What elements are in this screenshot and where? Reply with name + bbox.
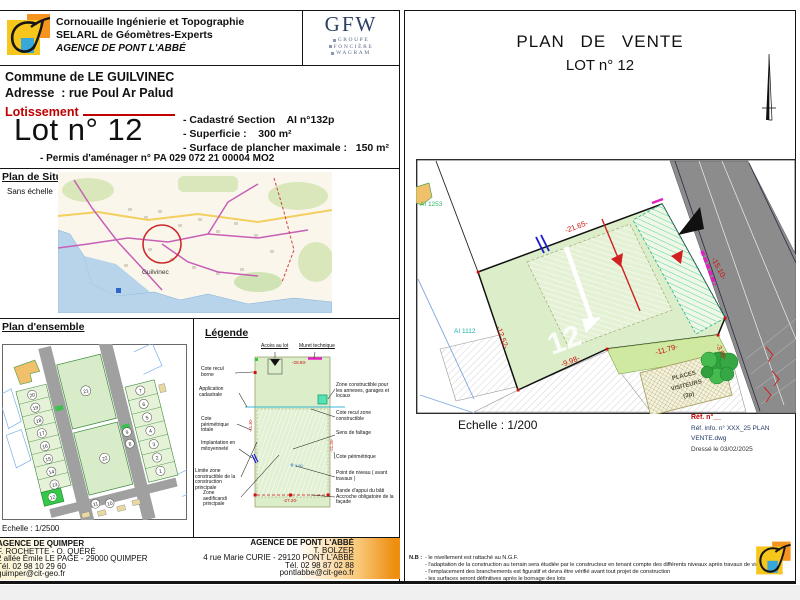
gfw-square-icon — [329, 45, 332, 48]
ref-date: Dressé le 03/02/2025 — [691, 445, 800, 456]
legend-label-zone-annexes: Zone constructible pour les annexes, gar… — [336, 383, 396, 400]
gfw-square-icon — [331, 52, 334, 55]
permis-amenager: - Permis d'aménager n° PA 029 072 21 000… — [40, 153, 274, 164]
nb-line: - l'adaptation de la construction au ter… — [425, 562, 780, 569]
legend-label-cote-recul-borne: Cote recul borne — [201, 367, 235, 378]
title-line1: PLAN DE VENTE — [480, 32, 720, 52]
divider — [0, 318, 400, 319]
divider — [0, 65, 400, 66]
legend-label-implantation: Implantation en mitoyenneté — [201, 441, 237, 452]
agency-email: pontlabbe@cit-geo.fr — [193, 569, 354, 577]
legend-dim-bottom: -27.20- — [283, 498, 298, 503]
situation-map: Guilvinec — [58, 172, 332, 313]
parcel-label-w: AI 1112 — [454, 328, 476, 335]
company-name: Cornouaille Ingénierie et Topographie — [56, 16, 244, 29]
nb-line: - l'emplacement des branchements est fig… — [425, 569, 780, 576]
legend-label-limite-zone: Limite zone constructible de la construc… — [195, 469, 241, 491]
divider — [404, 10, 796, 11]
nb-line: - les surfaces seront définitives après … — [425, 576, 780, 583]
footer-agence-quimper: AGENCE DE QUIMPER F. ROCHETTE - O. QUÉRÉ… — [0, 539, 193, 580]
legend-label-point-de-niveau: Point de niveau ( avant travaux ) — [336, 471, 388, 482]
gfw-acronym: GFW — [303, 12, 399, 37]
references-block: Réf. n°__ Réf. info. n° XXX_25 PLAN VENT… — [691, 413, 800, 455]
cit-logo — [4, 12, 52, 62]
company-type: SELARL de Géomètres-Experts — [56, 29, 244, 42]
map-harbor-icon — [116, 288, 121, 293]
parcel-label-nw: AI 1253 — [420, 201, 443, 208]
company-header: Cornouaille Ingénierie et Topographie SE… — [56, 16, 244, 55]
superficie: - Superficie : 300 m² — [183, 127, 389, 141]
ref-info: Réf. info. n° XXX_25 PLAN VENTE.dwg — [691, 424, 800, 445]
lot-number-title: Lot n° 12 — [14, 112, 143, 148]
legend-label-cote-recul-zone: Cote recul zone constructible — [336, 411, 391, 422]
agency-email: quimper@cit-geo.fr — [0, 570, 193, 578]
nota-bene: N.B : - le nivellement est rattaché au N… — [409, 555, 793, 583]
nb-intro: N.B : — [409, 555, 422, 583]
map-place-label: Guilvinec — [142, 269, 169, 276]
commune-label: Commune de LE GUILVINEC — [5, 70, 174, 84]
legend: Légende -28.80- -41.30- -21.26- 5.50 -27… — [195, 327, 400, 535]
legend-dim-top: -28.80- — [292, 360, 307, 365]
gfw-word: WAGRAM — [336, 50, 371, 57]
legend-label-sens-de-faitage: Sens de faîtage — [336, 431, 386, 437]
footer-agence-pontlabbe: AGENCE DE PONT L'ABBÉ T. BOLZER 4 rue Ma… — [193, 538, 400, 579]
legend-label-application-cadastrale: Application cadastrale — [199, 387, 241, 398]
gfw-square-icon — [333, 39, 336, 42]
ensemble-title: Plan d'ensemble — [2, 321, 84, 333]
legend-label-cote-perimetrique: Cote périmétrique — [336, 455, 386, 461]
legend-label-bande-appui: Bande d'appui du bâti Accroche obligatoi… — [336, 489, 394, 506]
gfw-logo: GFW GROUPE FONCIÈRE WAGRAM — [303, 12, 399, 64]
ensemble-site-plan: 20 19 18 17 16 15 14 13 7 6 5 4 3 2 1 9 … — [2, 344, 187, 520]
north-arrow-icon — [752, 50, 784, 128]
plan-de-vente-title: PLAN DE VENTE LOT n° 12 — [480, 32, 720, 74]
legend-label-zone-aedificandi: Zone aedificandi principale — [203, 491, 239, 508]
legend-dim-right: -21.26- — [329, 438, 334, 452]
cadastre-section: - Cadastré Section AI n°132p — [183, 113, 389, 127]
legend-level-value: 5.50 — [295, 463, 304, 468]
page-margin — [0, 585, 800, 600]
divider — [0, 168, 400, 169]
legend-label-cote-perimetrique-totale: Cote périmétrique totale — [201, 417, 235, 434]
legend-label-muret-technique: Muret technique — [299, 344, 337, 350]
ensemble-scale: Echelle : 1/2500 — [2, 524, 59, 533]
divider — [404, 10, 405, 582]
plan-de-vente-document: { "colors": { "red_dim": "#cc1111", "red… — [0, 0, 800, 600]
plan-de-vente-drawing: 12 PLACES VISITEURS (3p) -21.65- -15.10-… — [416, 159, 796, 414]
situation-scale: Sans échelle — [7, 187, 53, 196]
legend-label-acces-au-lot: Accès au lot — [261, 344, 293, 350]
plan-scale: Echelle : 1/200 — [458, 418, 537, 432]
cit-logo-footer — [753, 540, 793, 580]
adresse-label: Adresse : rue Poul Ar Palud — [5, 86, 173, 100]
title-line2: LOT n° 12 — [480, 57, 720, 74]
company-agency: AGENCE DE PONT L'ABBÉ — [56, 42, 244, 55]
cadastre-block: - Cadastré Section AI n°132p - Superfici… — [183, 113, 389, 155]
nb-line: - le nivellement est rattaché au N.G.F. — [425, 555, 780, 562]
ref-number: Réf. n°__ — [691, 413, 800, 424]
